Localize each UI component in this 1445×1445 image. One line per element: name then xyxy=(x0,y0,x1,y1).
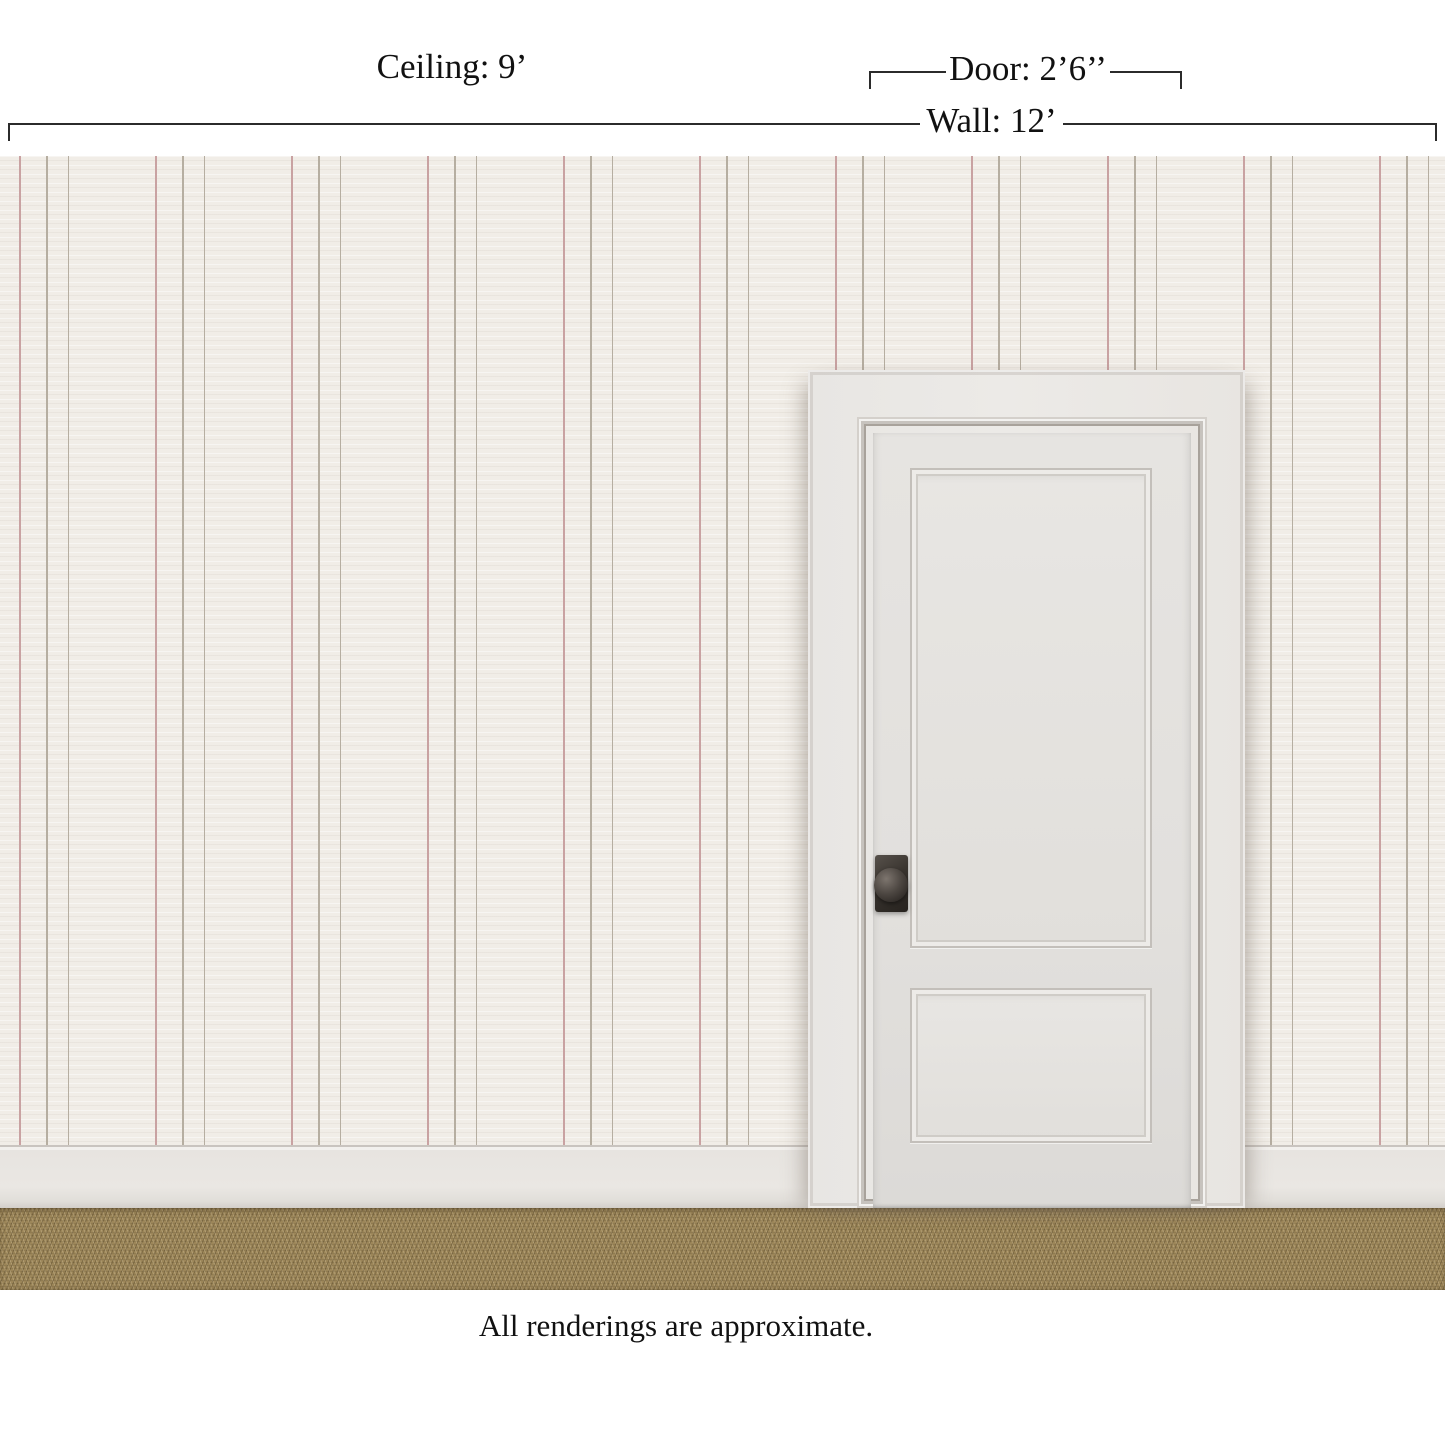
wall-dimension-line-left xyxy=(8,123,920,125)
wall-dimension-tick-right xyxy=(1435,123,1437,141)
door-dimension-label: Door: 2’6’’ xyxy=(940,50,1116,89)
door-upper-panel xyxy=(910,468,1152,948)
door-slab xyxy=(873,433,1191,1208)
wall-dimension-label: Wall: 12’ xyxy=(918,102,1065,141)
door-dimension-line-right xyxy=(1110,71,1182,73)
disclaimer-text: All renderings are approximate. xyxy=(479,1308,873,1344)
ceiling-dimension-label: Ceiling: 9’ xyxy=(377,48,528,87)
wall-dimension-line-right xyxy=(1063,123,1437,125)
door xyxy=(808,370,1245,1208)
carpet-floor xyxy=(0,1208,1445,1290)
wall-dimension-tick-left xyxy=(8,123,10,141)
door-lower-panel xyxy=(910,988,1152,1143)
door-dimension-tick-left xyxy=(869,71,871,89)
wallpaper-room-rendering: Ceiling: 9’ Door: 2’6’’ Wall: 12’ All re… xyxy=(0,0,1445,1445)
door-dimension-tick-right xyxy=(1180,71,1182,89)
doorknob xyxy=(874,868,908,902)
door-casing-molding xyxy=(857,417,1207,1208)
door-dimension-line-left xyxy=(869,71,946,73)
